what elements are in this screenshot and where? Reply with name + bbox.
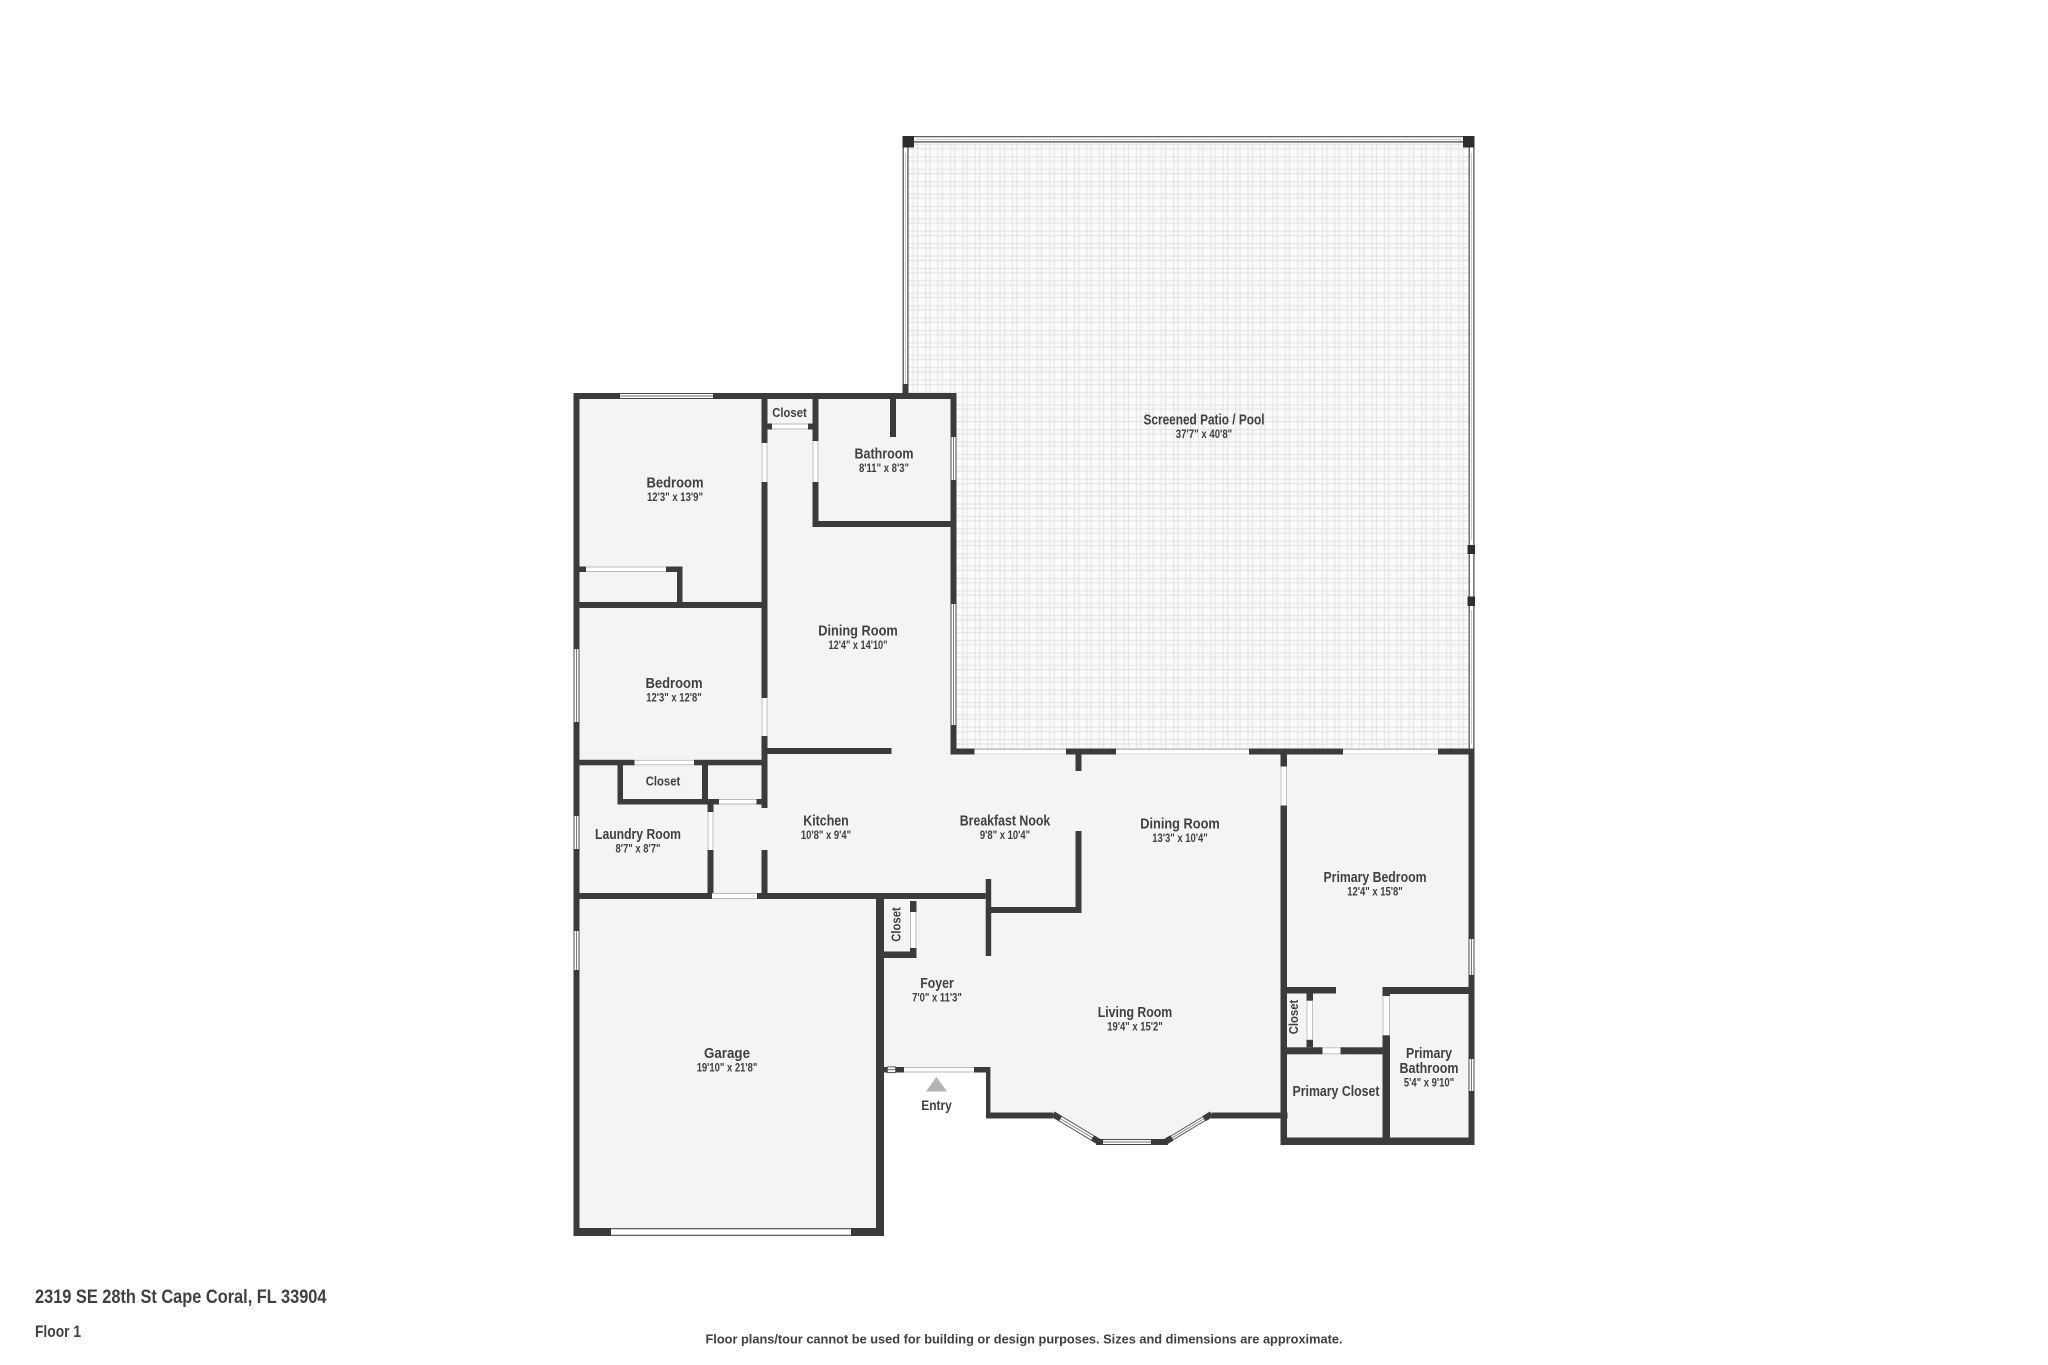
- svg-text:19'4" x 15'2": 19'4" x 15'2": [1107, 1020, 1162, 1034]
- svg-text:Closet: Closet: [646, 774, 681, 789]
- svg-text:Floor plans/tour cannot be use: Floor plans/tour cannot be used for buil…: [706, 1332, 1343, 1347]
- svg-text:Primary: Primary: [1406, 1046, 1452, 1062]
- svg-text:7'0" x 11'3": 7'0" x 11'3": [912, 991, 962, 1005]
- svg-text:12'3" x 13'9": 12'3" x 13'9": [647, 490, 703, 504]
- svg-text:19'10" x 21'8": 19'10" x 21'8": [697, 1061, 758, 1075]
- svg-text:12'3" x 12'8": 12'3" x 12'8": [646, 691, 701, 705]
- svg-text:2319 SE 28th St Cape Coral, FL: 2319 SE 28th St Cape Coral, FL 33904: [35, 1286, 327, 1308]
- svg-text:8'11" x 8'3": 8'11" x 8'3": [859, 461, 909, 475]
- svg-text:13'3" x 10'4": 13'3" x 10'4": [1152, 831, 1207, 845]
- svg-text:5'4" x 9'10": 5'4" x 9'10": [1404, 1076, 1454, 1090]
- svg-text:9'8" x 10'4": 9'8" x 10'4": [980, 828, 1030, 842]
- svg-text:10'8" x 9'4": 10'8" x 9'4": [801, 828, 851, 842]
- svg-text:37'7" x 40'8": 37'7" x 40'8": [1176, 427, 1233, 441]
- svg-text:Floor 1: Floor 1: [35, 1322, 81, 1341]
- svg-text:Entry: Entry: [921, 1097, 952, 1113]
- svg-text:Closet: Closet: [1286, 999, 1301, 1034]
- svg-text:Closet: Closet: [889, 907, 904, 942]
- svg-text:Closet: Closet: [772, 405, 807, 420]
- svg-text:12'4" x 15'8": 12'4" x 15'8": [1347, 885, 1402, 899]
- svg-text:8'7" x 8'7": 8'7" x 8'7": [616, 842, 661, 856]
- svg-text:Primary Closet: Primary Closet: [1293, 1084, 1380, 1100]
- svg-text:12'4" x 14'10": 12'4" x 14'10": [829, 638, 888, 652]
